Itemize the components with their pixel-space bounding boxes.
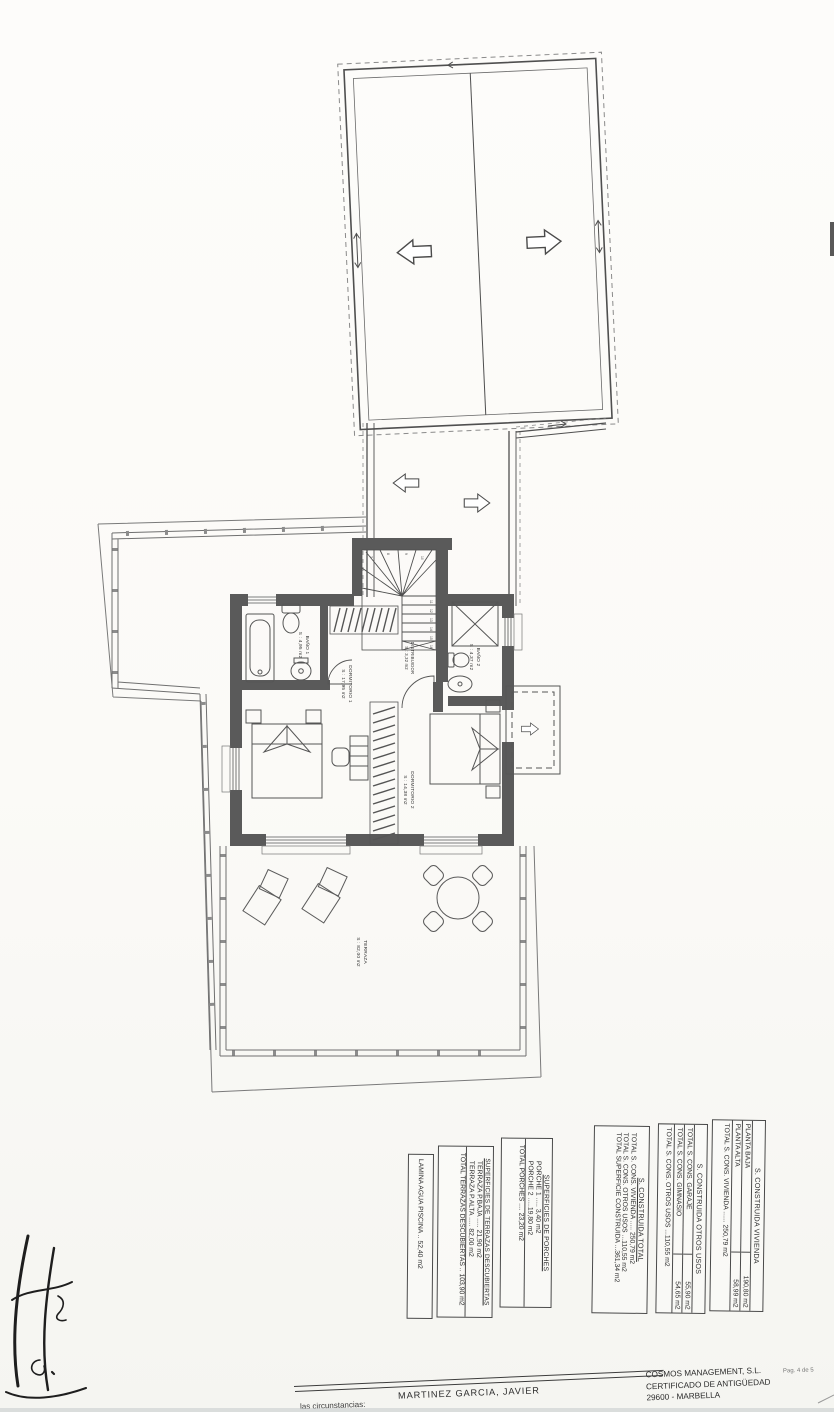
round-table-set	[421, 863, 494, 933]
table-superficie-construida-vivienda: S. CONSTRUIDA VIVIENDA PLANTA BAJA 190,8…	[709, 1119, 766, 1312]
footer-page-number: Pag. 4 de 5	[783, 1367, 814, 1374]
window	[420, 834, 482, 854]
svg-text:8: 8	[386, 553, 390, 555]
bathtub	[246, 614, 274, 682]
bidet	[291, 658, 311, 680]
table-title: SUPERFICIES DE PORCHES	[541, 1139, 552, 1307]
porch-outline	[506, 686, 560, 774]
svg-text:13: 13	[429, 618, 433, 622]
terrace-furniture	[242, 863, 495, 933]
svg-text:7: 7	[369, 556, 373, 558]
svg-text:16: 16	[429, 645, 433, 649]
room-area-bano2: S : 4,37 m2	[468, 644, 474, 671]
room-area-dormitorio2: S : 14,38 m2	[402, 775, 408, 805]
svg-text:12: 12	[429, 609, 433, 613]
shower	[452, 602, 498, 646]
closet-hatch	[330, 606, 398, 634]
bed	[246, 710, 322, 798]
strip-slope-arrow-left	[393, 474, 419, 492]
toilet	[448, 653, 469, 667]
svg-text:9: 9	[404, 553, 408, 555]
signature	[6, 1236, 86, 1398]
plan-walls	[230, 538, 514, 846]
sun-lounger	[301, 865, 352, 923]
table-line: TERRAZA P.BAJA ..... 21,90 m2	[474, 1147, 483, 1317]
table-superficies-de-porches: SUPERFICIES DE PORCHES PORCHE 1 ..... 3,…	[500, 1138, 553, 1308]
lower-terrace-railing	[220, 846, 526, 1056]
scan-bottom-edge	[0, 1408, 834, 1412]
svg-text:14: 14	[429, 627, 433, 631]
eave-tick-arrow-left	[353, 233, 361, 267]
roof-strip	[363, 418, 606, 606]
room-label-bano2: BAÑO 2	[475, 648, 482, 667]
window	[262, 834, 350, 854]
room-label-terraza: TERRAZA	[362, 940, 368, 964]
chair	[332, 748, 349, 766]
room-area-distribuidor: S : 3,32 m2	[404, 646, 409, 670]
table-superficie-construida-otros-usos: S. CONSTRUIDA OTROS USOS TOTAL S. CONS. …	[655, 1123, 708, 1314]
room-area-bano1: S : 4,95 m2	[297, 632, 303, 659]
ridge-top-arrow	[448, 61, 466, 68]
toilet	[282, 604, 300, 633]
table-line: PORCHE 1 ..... 3,40 m2	[533, 1139, 542, 1307]
roof-slope-arrow-right	[526, 229, 561, 255]
table-total: TOTAL PORCHES .... 23,20 m2	[516, 1139, 526, 1307]
scanned-floor-plan-sheet: 7 8 9 10 11 12 13 14 15 16	[0, 0, 834, 1412]
footer-company-block: COSMOS MANAGEMENT, S.L. CERTIFICADO DE A…	[645, 1365, 771, 1404]
svg-text:10: 10	[420, 556, 424, 560]
roof-slope-arrow-left	[397, 239, 432, 265]
window	[502, 614, 522, 650]
table-title: S. CONSTRUIDA OTROS USOS	[692, 1125, 707, 1313]
staircase	[362, 550, 436, 650]
strip-slope-arrow-right	[464, 494, 490, 512]
table-title: SUPERFICIES DE TERRAZAS DESCUBIERTAS	[482, 1147, 493, 1317]
room-label-dormitorio1: DORMITORIO 1	[347, 665, 353, 703]
sun-lounger	[242, 867, 293, 925]
wardrobe-hatch	[370, 702, 398, 844]
roof-ridge-line	[470, 73, 486, 415]
room-area-dormitorio1: S : 17,95 m2	[340, 669, 346, 699]
fixtures	[246, 602, 500, 844]
table-lamina-agua-piscina: LAMINA AGUA PISCINA .. 52,40 m2	[407, 1154, 434, 1319]
porch-slope-arrow	[522, 723, 539, 735]
roof-plan	[338, 52, 619, 436]
scan-artifacts	[818, 222, 834, 1403]
strip-edge-arrow	[548, 421, 566, 427]
table-line: LAMINA AGUA PISCINA .. 52,40 m2	[408, 1155, 433, 1318]
svg-text:11: 11	[429, 600, 433, 604]
bed	[430, 700, 500, 798]
window	[222, 746, 242, 792]
table-title: S. CONSTRUIDA VIVIENDA	[750, 1121, 765, 1311]
sink	[448, 676, 472, 692]
eave-tick-arrow-right	[595, 220, 602, 252]
svg-text:15: 15	[429, 636, 433, 640]
table-superficies-de-terrazas-descubiertas: SUPERFICIES DE TERRAZAS DESCUBIERTAS TER…	[437, 1146, 494, 1318]
room-label-bano1: BAÑO 1	[304, 636, 311, 655]
table-total: TOTAL TERRAZAS DESCUBIERTAS .. 103,90 m2	[457, 1147, 467, 1317]
railing-ticks	[115, 528, 523, 1054]
room-label-dormitorio2: DORMITORIO 2	[409, 771, 415, 809]
room-area-terraza: S : 82,00 m2	[355, 937, 361, 967]
room-label-distribuidor: DISTRIBUIDOR	[410, 642, 415, 674]
desk	[350, 736, 368, 780]
window	[248, 594, 276, 606]
table-superficie-construida-total: S. CONSTRUIDA TOTAL TOTAL S. CONS. VIVIE…	[591, 1125, 650, 1314]
